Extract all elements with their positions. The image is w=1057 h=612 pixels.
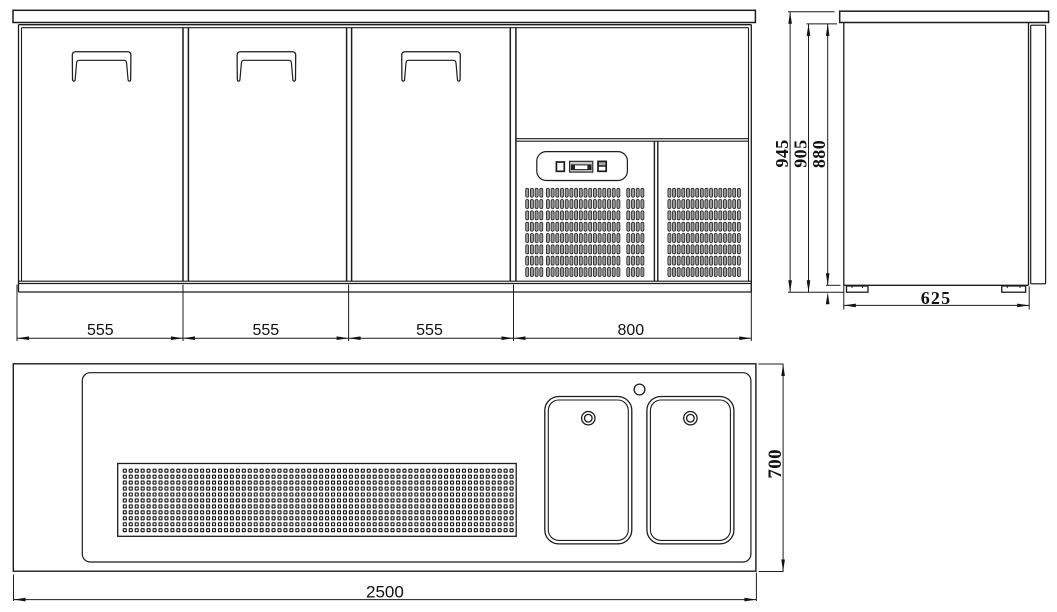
svg-text:625: 625 — [921, 288, 952, 308]
svg-text:555: 555 — [87, 322, 114, 339]
svg-text:800: 800 — [617, 322, 644, 339]
svg-text:555: 555 — [416, 322, 443, 339]
svg-text:555: 555 — [252, 322, 279, 339]
svg-text:880: 880 — [809, 140, 829, 168]
svg-text:2500: 2500 — [366, 582, 404, 601]
svg-text:945: 945 — [772, 139, 792, 167]
svg-text:700: 700 — [765, 449, 786, 479]
svg-text:905: 905 — [790, 139, 810, 167]
